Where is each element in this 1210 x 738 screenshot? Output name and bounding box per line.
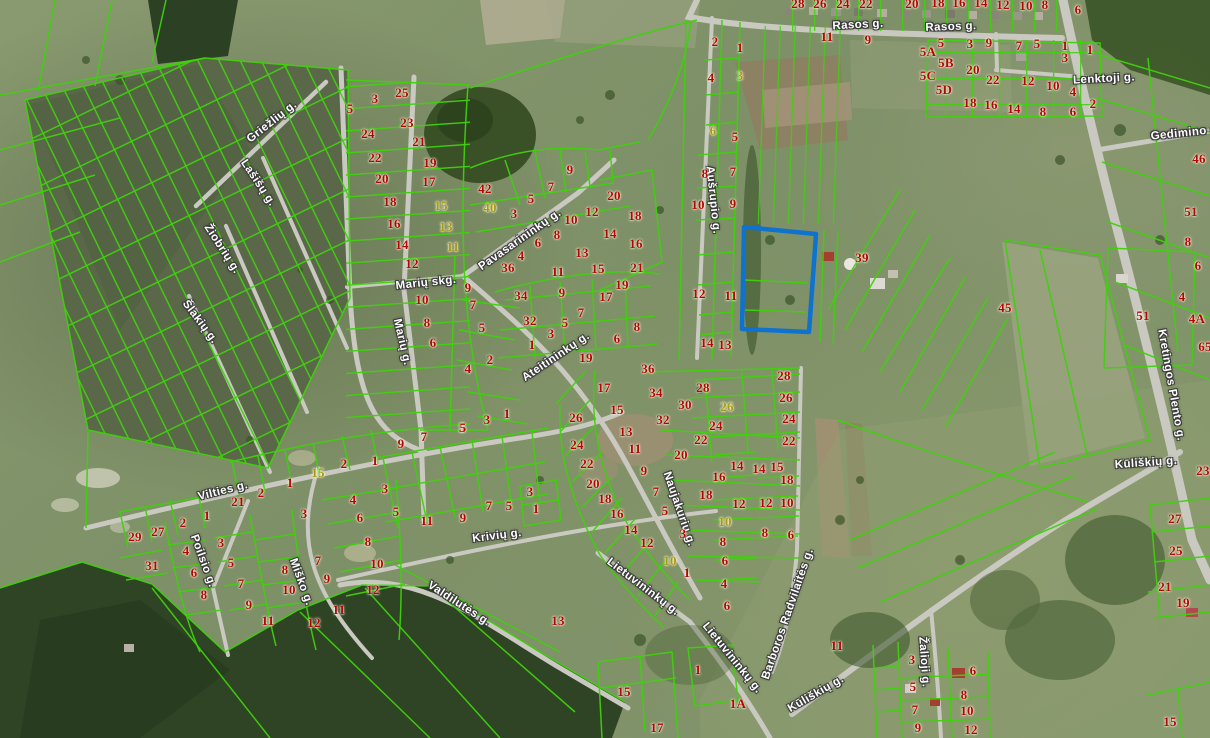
aerial-imagery <box>0 0 1210 738</box>
map-canvas[interactable]: Rasos g.Rasos g.Lenktoji g.Gedimino g.Gr… <box>0 0 1210 738</box>
